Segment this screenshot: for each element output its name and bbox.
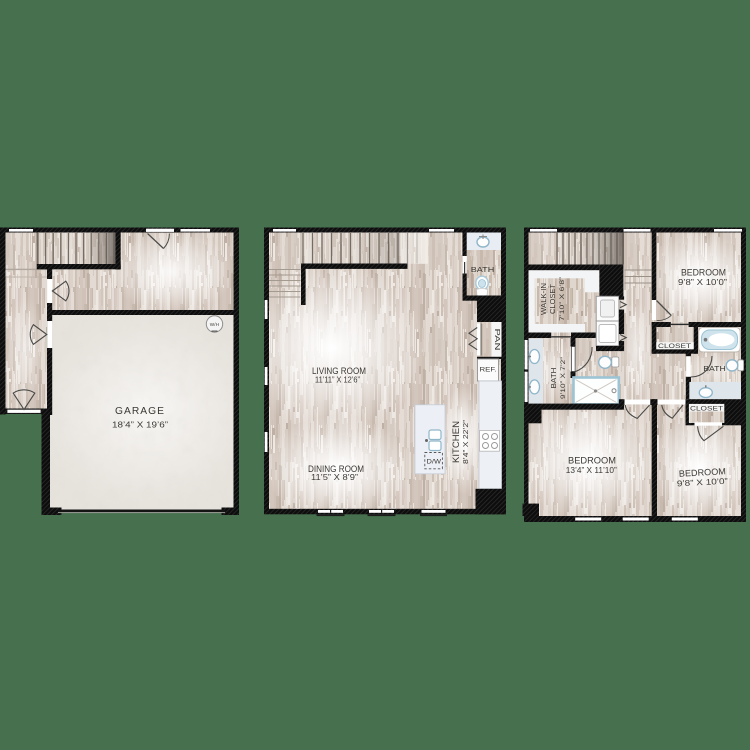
svg-text:REF.: REF.: [480, 367, 497, 374]
svg-text:9’10” X 7’2”: 9’10” X 7’2”: [560, 357, 567, 399]
svg-text:11’11” X 12’6”: 11’11” X 12’6”: [315, 376, 360, 385]
svg-text:11’5” X 8’9”: 11’5” X 8’9”: [311, 473, 358, 482]
svg-text:PAN: PAN: [493, 329, 500, 351]
svg-text:BATH: BATH: [549, 368, 558, 389]
svg-text:8’4” X 22’2”: 8’4” X 22’2”: [461, 419, 470, 464]
svg-text:▬▬: ▬▬: [212, 329, 218, 333]
svg-text:13’4” X 11’10”: 13’4” X 11’10”: [566, 466, 617, 475]
svg-text:BEDROOM: BEDROOM: [568, 456, 616, 467]
svg-text:W/H: W/H: [210, 322, 220, 327]
svg-text:7’10” X 6’8”: 7’10” X 6’8”: [559, 277, 566, 321]
svg-text:WALK-IN: WALK-IN: [541, 283, 548, 315]
svg-text:BATH: BATH: [471, 265, 495, 274]
svg-text:GARAGE: GARAGE: [115, 406, 165, 417]
svg-text:BEDROOM: BEDROOM: [681, 268, 726, 278]
svg-text:9’8” X 10’0”: 9’8” X 10’0”: [678, 278, 727, 287]
svg-text:CLOSET: CLOSET: [550, 283, 557, 314]
svg-text:CLOSET: CLOSET: [658, 343, 691, 350]
svg-text:D/W: D/W: [427, 459, 442, 466]
svg-text:BATH: BATH: [703, 364, 726, 373]
svg-text:CLOSET: CLOSET: [690, 406, 723, 413]
svg-text:18’4” X 19’6”: 18’4” X 19’6”: [112, 420, 168, 430]
svg-text:KITCHEN: KITCHEN: [451, 421, 461, 463]
